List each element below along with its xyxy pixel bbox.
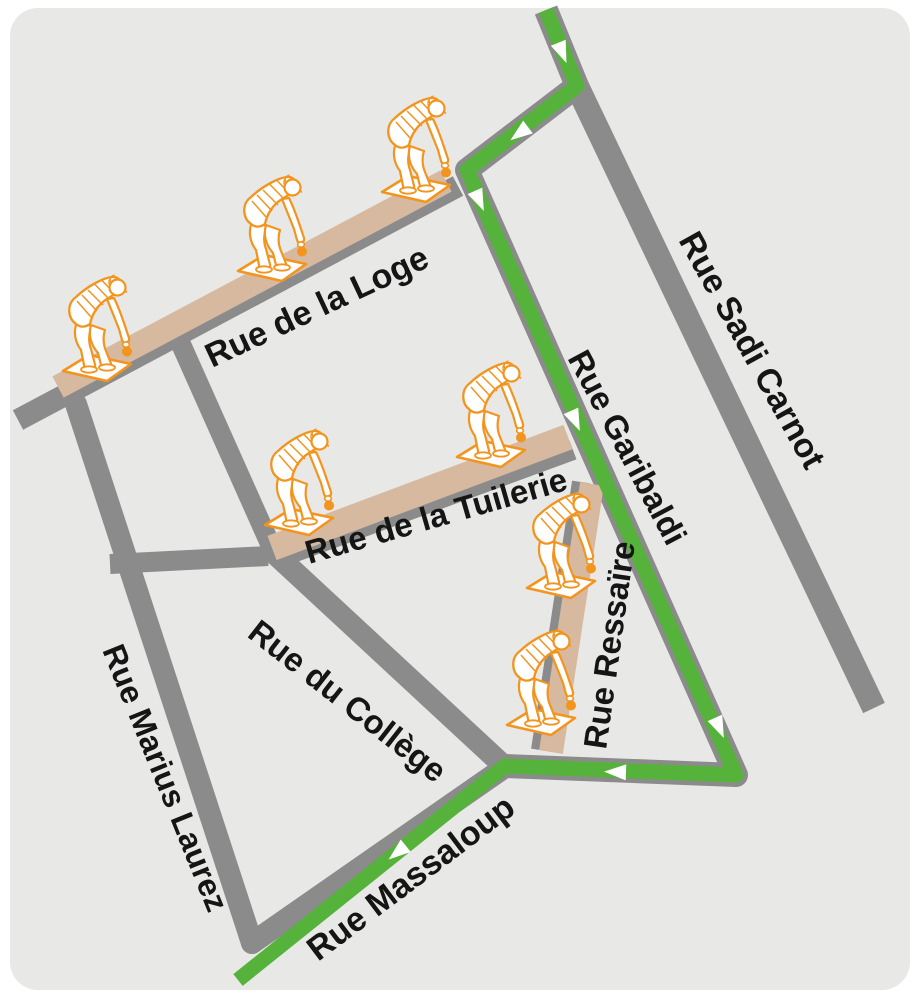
map-frame: Rue de la LogeRue Sadi CarnotRue Garibal… xyxy=(0,0,920,1000)
road-cross-street-road xyxy=(110,556,268,564)
map-page: Rue de la LogeRue Sadi CarnotRue Garibal… xyxy=(0,0,920,1000)
map-canvas: Rue de la LogeRue Sadi CarnotRue Garibal… xyxy=(0,0,920,1000)
